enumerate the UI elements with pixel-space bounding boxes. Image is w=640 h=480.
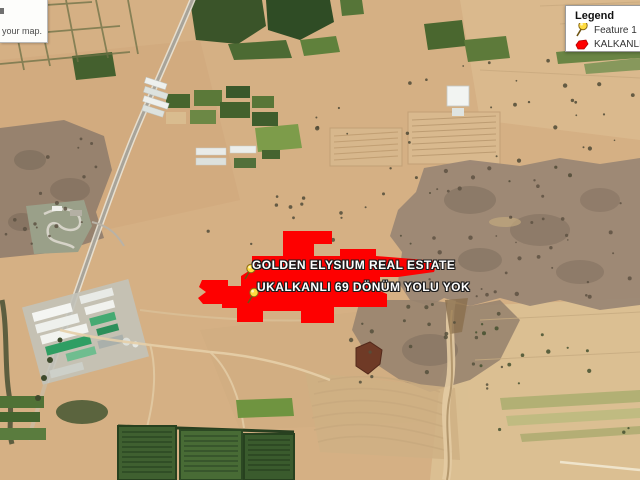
legend-item-feature1: Feature 1: [575, 24, 640, 37]
placemark-label-1[interactable]: GOLDEN ELYSIUM REAL ESTATE: [252, 258, 455, 272]
legend-title: Legend: [575, 10, 640, 22]
white-building: [447, 86, 469, 106]
placemark-label-2[interactable]: UKALKANLI 69 DÖNÜM YOLU YOK: [257, 280, 470, 294]
clipped-text-fragment: [0, 8, 4, 14]
legend-item-kalkanli: KALKANLI 69: [575, 38, 640, 51]
pushpin-icon: [575, 23, 590, 38]
info-popup-text: your map.: [2, 26, 42, 36]
red-polygon-icon: [575, 39, 590, 51]
satellite-map[interactable]: [0, 0, 640, 480]
legend-item-label: KALKANLI 69: [594, 39, 640, 50]
legend-item-label: Feature 1: [594, 25, 637, 36]
legend-panel: Legend Feature 1 KALKANLI 69: [565, 5, 640, 52]
map-viewport[interactable]: GOLDEN ELYSIUM REAL ESTATE UKALKANLI 69 …: [0, 0, 640, 480]
map-info-popup: your map.: [0, 0, 48, 43]
